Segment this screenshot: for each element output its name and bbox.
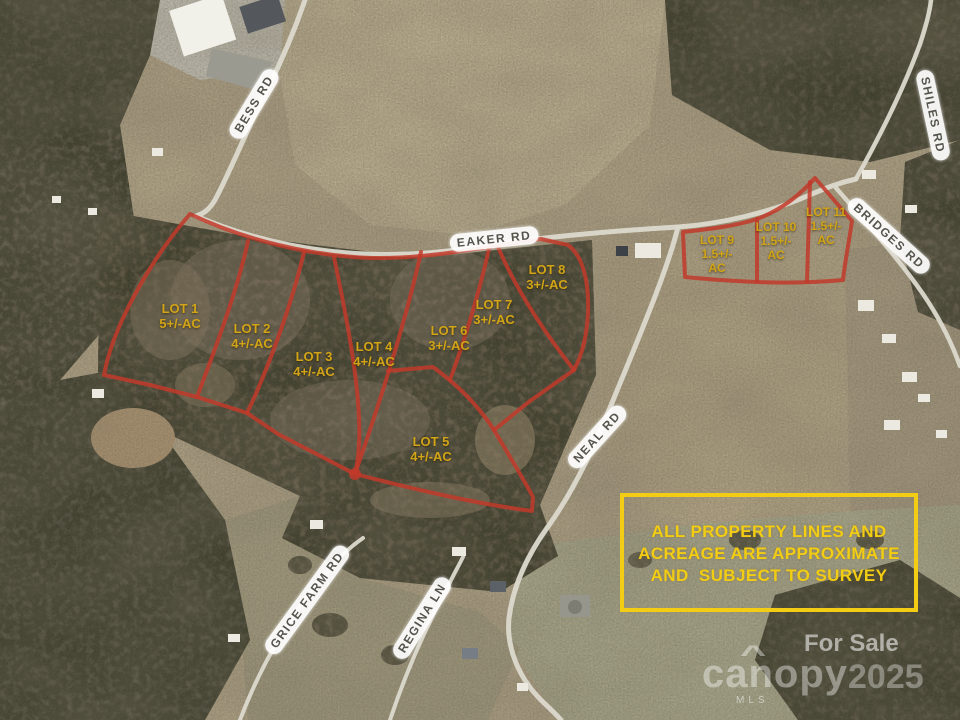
disclaimer-line: ACREAGE ARE APPROXIMATE <box>624 543 914 565</box>
lot-number: LOT 7 <box>473 297 515 312</box>
disclaimer-line: AND SUBJECT TO SURVEY <box>624 565 914 587</box>
lot-label-11: LOT 11 1.5+/- AC <box>806 205 846 247</box>
year-watermark: 2025 <box>848 658 924 697</box>
disclaimer-box: ALL PROPERTY LINES AND ACREAGE ARE APPRO… <box>620 493 918 612</box>
aerial-photo <box>0 0 960 720</box>
lot-acreage: 5+/-AC <box>159 316 201 331</box>
disclaimer-line: ALL PROPERTY LINES AND <box>624 521 914 543</box>
lot-number: LOT 5 <box>410 434 452 449</box>
lot-acreage: 4+/-AC <box>293 364 335 379</box>
lot-number: LOT 4 <box>353 339 395 354</box>
lot-acreage: 4+/-AC <box>353 354 395 369</box>
lot-number: LOT 3 <box>293 349 335 364</box>
lot-number: LOT 10 <box>756 220 797 234</box>
lot-label-9: LOT 9 1.5+/- AC <box>700 233 734 275</box>
lot-acreage: 3+/-AC <box>526 277 568 292</box>
lot-number: LOT 2 <box>231 321 273 336</box>
lot-acreage: 1.5+/- <box>756 234 797 248</box>
canopy-roof-icon: ^ <box>740 641 767 669</box>
lot-number: LOT 6 <box>428 323 470 338</box>
lot-label-4: LOT 4 4+/-AC <box>353 339 395 369</box>
lot-label-2: LOT 2 4+/-AC <box>231 321 273 351</box>
lot-acreage: AC <box>806 233 846 247</box>
lot-label-7: LOT 7 3+/-AC <box>473 297 515 327</box>
lot-acreage: AC <box>700 261 734 275</box>
lot-label-1: LOT 1 5+/-AC <box>159 301 201 331</box>
lot-acreage: 3+/-AC <box>473 312 515 327</box>
lot-label-3: LOT 3 4+/-AC <box>293 349 335 379</box>
lot-label-6: LOT 6 3+/-AC <box>428 323 470 353</box>
lot-number: LOT 9 <box>700 233 734 247</box>
lot-label-5: LOT 5 4+/-AC <box>410 434 452 464</box>
lot-acreage: 4+/-AC <box>231 336 273 351</box>
lot-acreage: 3+/-AC <box>428 338 470 353</box>
canopy-logo: canopy <box>702 652 848 697</box>
lot-acreage: 1.5+/- <box>700 247 734 261</box>
lot-acreage: 4+/-AC <box>410 449 452 464</box>
aerial-parcel-map: BESS RD EAKER RD SHILES RD BRIDGES RD NE… <box>0 0 960 720</box>
lot-number: LOT 11 <box>806 205 846 219</box>
mls-watermark: MLS <box>736 695 769 706</box>
lot-acreage: AC <box>756 248 797 262</box>
lot-label-10: LOT 10 1.5+/- AC <box>756 220 797 262</box>
lot-acreage: 1.5+/- <box>806 219 846 233</box>
lot-number: LOT 8 <box>526 262 568 277</box>
lot-number: LOT 1 <box>159 301 201 316</box>
lot-label-8: LOT 8 3+/-AC <box>526 262 568 292</box>
